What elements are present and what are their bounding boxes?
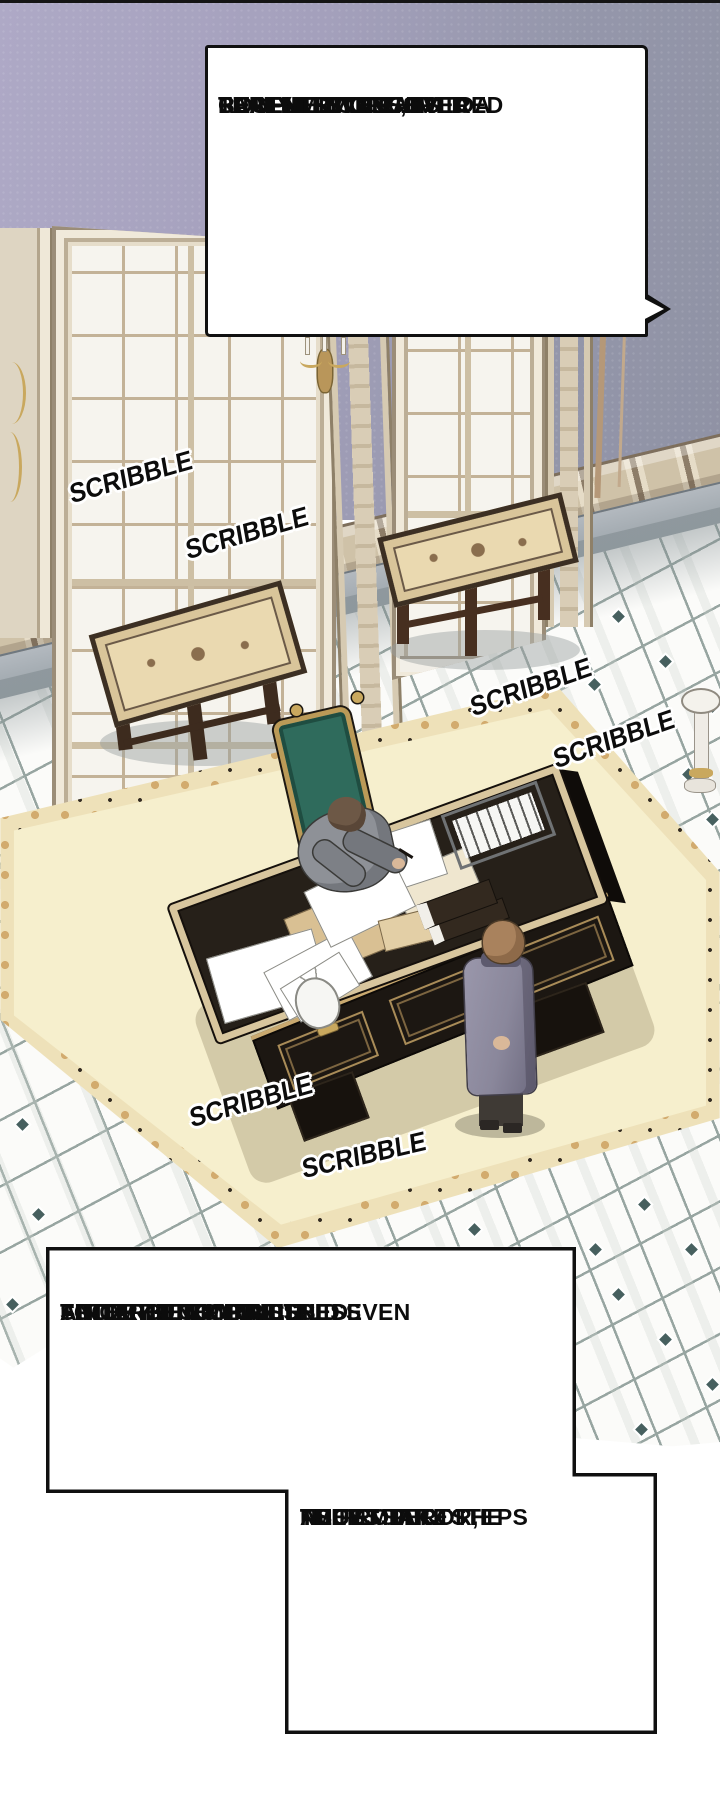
attendant-hair xyxy=(483,921,524,963)
attendant-hands-clasped xyxy=(493,1036,510,1050)
speech-line: THEM. xyxy=(300,1500,373,1535)
pedestal-base xyxy=(684,778,716,793)
chair-finial xyxy=(352,692,363,703)
sconce-arm xyxy=(300,354,322,368)
panel-border-top xyxy=(0,0,720,3)
speech-line: PARENTS. xyxy=(218,88,335,123)
attendant-shoe xyxy=(480,1120,499,1130)
pedestal-top xyxy=(681,688,720,714)
pedestal-gold-ring xyxy=(689,768,713,778)
speech-line: FROM THE EMPIRE... xyxy=(60,1292,299,1332)
speech-bubble-top: FURTHERMORE, I RECENTLY DISCOVERED THAT … xyxy=(205,45,648,337)
emperor-hand xyxy=(392,858,405,869)
chair-finial xyxy=(291,705,302,716)
attendant-shoe xyxy=(503,1123,522,1133)
sconce-arm xyxy=(328,354,350,368)
table-leg xyxy=(465,584,477,656)
candle xyxy=(341,337,346,355)
comic-page: SCRIBBLE SCRIBBLE SCRIBBLE SCRIBBLE SCRI… xyxy=(0,0,720,1807)
candle xyxy=(305,337,310,355)
attendant-coat xyxy=(464,957,537,1095)
